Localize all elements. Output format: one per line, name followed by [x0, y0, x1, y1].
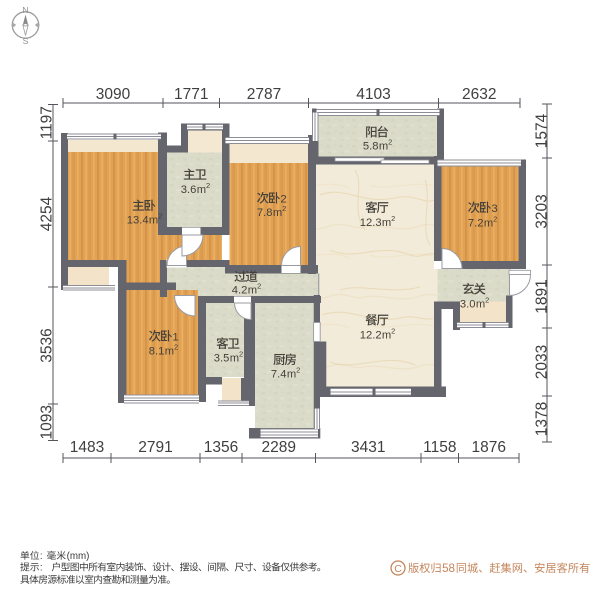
svg-text:3431: 3431 [351, 439, 385, 456]
svg-text:7.2: 7.2 [468, 218, 484, 230]
svg-text:2: 2 [158, 212, 162, 221]
svg-text:2: 2 [206, 181, 210, 190]
svg-text:2: 2 [282, 204, 286, 213]
svg-text:m: m [476, 299, 485, 311]
svg-text:m: m [149, 215, 158, 227]
svg-text:2: 2 [239, 350, 243, 359]
svg-text:4.2: 4.2 [232, 285, 248, 297]
svg-text:1891: 1891 [534, 279, 551, 313]
svg-text:3536: 3536 [39, 328, 56, 362]
svg-text:m: m [248, 285, 257, 297]
svg-text:3: 3 [491, 203, 497, 215]
svg-text:2: 2 [493, 215, 497, 224]
svg-text:8.1: 8.1 [149, 346, 165, 358]
svg-text:13.4: 13.4 [127, 215, 149, 227]
svg-text:m: m [379, 141, 388, 153]
svg-text:5.8: 5.8 [363, 141, 379, 153]
svg-text:2289: 2289 [262, 439, 296, 456]
svg-text:1876: 1876 [472, 439, 506, 456]
svg-text:3.5: 3.5 [214, 353, 230, 365]
svg-text:2787: 2787 [247, 86, 281, 103]
svg-text:3203: 3203 [534, 194, 551, 228]
svg-text:7.4: 7.4 [271, 369, 287, 381]
svg-text:1574: 1574 [534, 113, 551, 148]
svg-text:1483: 1483 [70, 439, 104, 456]
svg-text:1771: 1771 [174, 86, 208, 103]
svg-text:(mm): (mm) [67, 551, 90, 562]
svg-text:12.3: 12.3 [360, 217, 382, 229]
svg-text:2: 2 [257, 282, 261, 291]
svg-text:4254: 4254 [39, 196, 56, 231]
svg-text:N: N [22, 5, 28, 15]
svg-text::: : [40, 551, 43, 562]
svg-text:m: m [484, 218, 493, 230]
svg-text:7.8: 7.8 [257, 207, 273, 219]
svg-text:3.0: 3.0 [460, 299, 476, 311]
svg-text:2: 2 [174, 343, 178, 352]
svg-text:58: 58 [442, 562, 455, 575]
svg-text:m: m [230, 353, 239, 365]
svg-text:m: m [273, 207, 282, 219]
svg-text:12.2: 12.2 [360, 330, 382, 342]
svg-text:C: C [394, 563, 402, 575]
svg-text:S: S [23, 36, 29, 46]
svg-text:m: m [197, 184, 206, 196]
svg-text:1356: 1356 [204, 439, 238, 456]
svg-text:m: m [287, 369, 296, 381]
svg-text:2: 2 [296, 366, 300, 375]
svg-text:1197: 1197 [39, 106, 56, 139]
svg-text:1093: 1093 [39, 405, 56, 439]
svg-text::: : [40, 563, 43, 574]
svg-text:3090: 3090 [96, 86, 131, 103]
svg-text:3.6: 3.6 [181, 184, 197, 196]
svg-text:m: m [165, 346, 174, 358]
svg-text:2: 2 [391, 327, 395, 336]
svg-text:4103: 4103 [356, 86, 390, 103]
svg-text:2: 2 [391, 214, 395, 223]
svg-text:m: m [382, 217, 391, 229]
svg-text:2632: 2632 [462, 86, 496, 103]
svg-text:1378: 1378 [534, 402, 551, 436]
svg-text:1158: 1158 [423, 439, 456, 456]
svg-text:m: m [382, 330, 391, 342]
svg-text:2791: 2791 [138, 439, 172, 456]
svg-text:2033: 2033 [534, 345, 551, 379]
svg-text:2: 2 [485, 296, 489, 305]
svg-text:2: 2 [388, 138, 392, 147]
